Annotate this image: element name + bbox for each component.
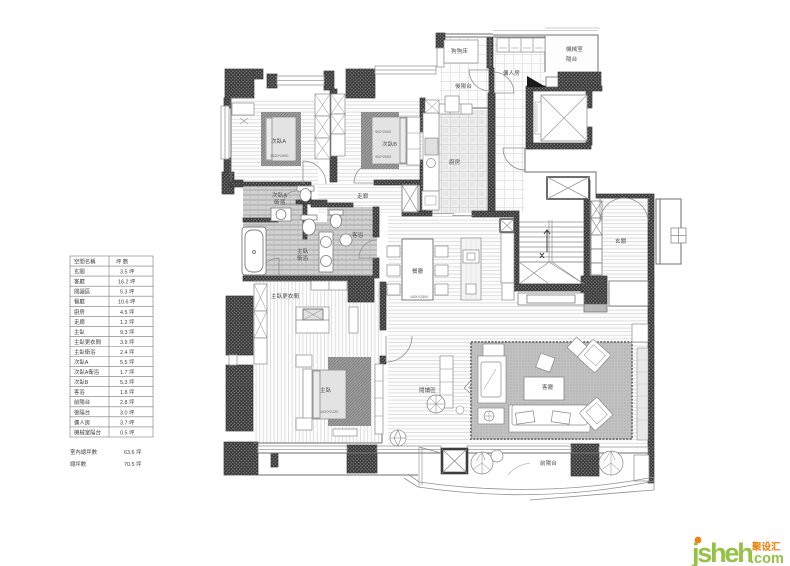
svg-text:1.2 坪: 1.2 坪 xyxy=(120,318,135,326)
svg-text:衛浴: 衛浴 xyxy=(274,198,286,206)
svg-text:次臥B: 次臥B xyxy=(382,140,397,148)
svg-text:主臥更衣間: 主臥更衣間 xyxy=(271,292,299,300)
svg-text:900*2000: 900*2000 xyxy=(375,155,391,159)
svg-text:閱讀區: 閱讀區 xyxy=(419,386,436,394)
svg-text:主臥: 主臥 xyxy=(297,247,309,255)
svg-text:次臥B: 次臥B xyxy=(74,378,89,386)
svg-text:前陽台: 前陽台 xyxy=(74,398,90,406)
svg-text:客廳: 客廳 xyxy=(74,278,85,286)
svg-text:5.3 坪: 5.3 坪 xyxy=(120,378,135,386)
svg-text:3.0 坪: 3.0 坪 xyxy=(120,408,135,416)
svg-text:後陽台: 後陽台 xyxy=(74,408,90,416)
svg-text:4.5 坪: 4.5 坪 xyxy=(120,308,135,316)
svg-text:次臥A: 次臥A xyxy=(74,358,89,366)
svg-text:機械室: 機械室 xyxy=(566,45,583,53)
svg-text:1520*1900: 1520*1900 xyxy=(270,154,288,158)
svg-text:走廊: 走廊 xyxy=(357,192,369,200)
svg-text:3.9 坪: 3.9 坪 xyxy=(120,338,135,346)
svg-text:玄關: 玄關 xyxy=(615,237,627,245)
svg-text:次臥A衛浴: 次臥A衛浴 xyxy=(74,368,100,376)
svg-text:1000*2500: 1000*2500 xyxy=(410,295,428,299)
svg-text:主臥: 主臥 xyxy=(320,386,332,394)
svg-text:機械室陽台: 機械室陽台 xyxy=(74,428,101,436)
svg-text:陽台: 陽台 xyxy=(566,55,578,63)
svg-text:63.6 坪: 63.6 坪 xyxy=(124,448,142,456)
svg-text:3.7 坪: 3.7 坪 xyxy=(120,418,135,426)
svg-text:前陽台: 前陽台 xyxy=(540,459,557,467)
svg-text:3.5 坪: 3.5 坪 xyxy=(120,268,135,276)
svg-text:2.8 坪: 2.8 坪 xyxy=(120,398,135,406)
svg-text:0.5 坪: 0.5 坪 xyxy=(120,428,135,436)
svg-text:900*2000: 900*2000 xyxy=(375,130,391,134)
svg-text:餐廳: 餐廳 xyxy=(412,267,424,275)
svg-text:室內總坪數: 室內總坪數 xyxy=(70,448,98,456)
svg-text:10.6 坪: 10.6 坪 xyxy=(118,298,136,306)
svg-text:5.5 坪: 5.5 坪 xyxy=(120,358,135,366)
svg-text:1.7 坪: 1.7 坪 xyxy=(120,368,135,376)
svg-text:狗狗床: 狗狗床 xyxy=(451,47,468,55)
svg-text:空間名稱: 空間名稱 xyxy=(74,258,96,266)
svg-text:走廊: 走廊 xyxy=(74,318,85,326)
svg-text:主臥衛浴: 主臥衛浴 xyxy=(74,348,96,356)
svg-text:1920*2120: 1920*2120 xyxy=(320,410,338,414)
svg-text:次臥A: 次臥A xyxy=(271,137,286,145)
svg-text:主臥更衣間: 主臥更衣間 xyxy=(74,338,101,346)
svg-text:餐廳: 餐廳 xyxy=(74,298,85,306)
svg-text:客浴: 客浴 xyxy=(74,388,85,396)
svg-text:傭人房: 傭人房 xyxy=(503,69,520,77)
svg-text:70.5 坪: 70.5 坪 xyxy=(124,460,142,468)
svg-text:5.3 坪: 5.3 坪 xyxy=(120,288,135,296)
svg-text:廚房: 廚房 xyxy=(74,308,85,316)
svg-text:後陽台: 後陽台 xyxy=(455,82,472,90)
svg-text:客廳: 客廳 xyxy=(542,383,554,391)
svg-text:坪 數: 坪 數 xyxy=(116,258,129,266)
svg-text:衛浴: 衛浴 xyxy=(297,254,309,262)
svg-text:客浴: 客浴 xyxy=(352,231,364,239)
svg-text:.com: .com xyxy=(750,551,784,566)
svg-text:1.8 坪: 1.8 坪 xyxy=(120,388,135,396)
svg-text:2.4 坪: 2.4 坪 xyxy=(120,348,135,356)
svg-text:次臥A: 次臥A xyxy=(272,191,287,199)
svg-text:9.3 坪: 9.3 坪 xyxy=(120,328,135,336)
svg-text:閱讀區: 閱讀區 xyxy=(74,288,91,296)
svg-text:16.2 坪: 16.2 坪 xyxy=(118,278,136,286)
svg-text:主臥: 主臥 xyxy=(74,328,85,336)
svg-text:總坪數: 總坪數 xyxy=(70,460,87,468)
svg-text:傭人房: 傭人房 xyxy=(74,418,90,426)
svg-text:廚房: 廚房 xyxy=(449,158,461,166)
svg-text:玄關: 玄關 xyxy=(74,268,85,276)
